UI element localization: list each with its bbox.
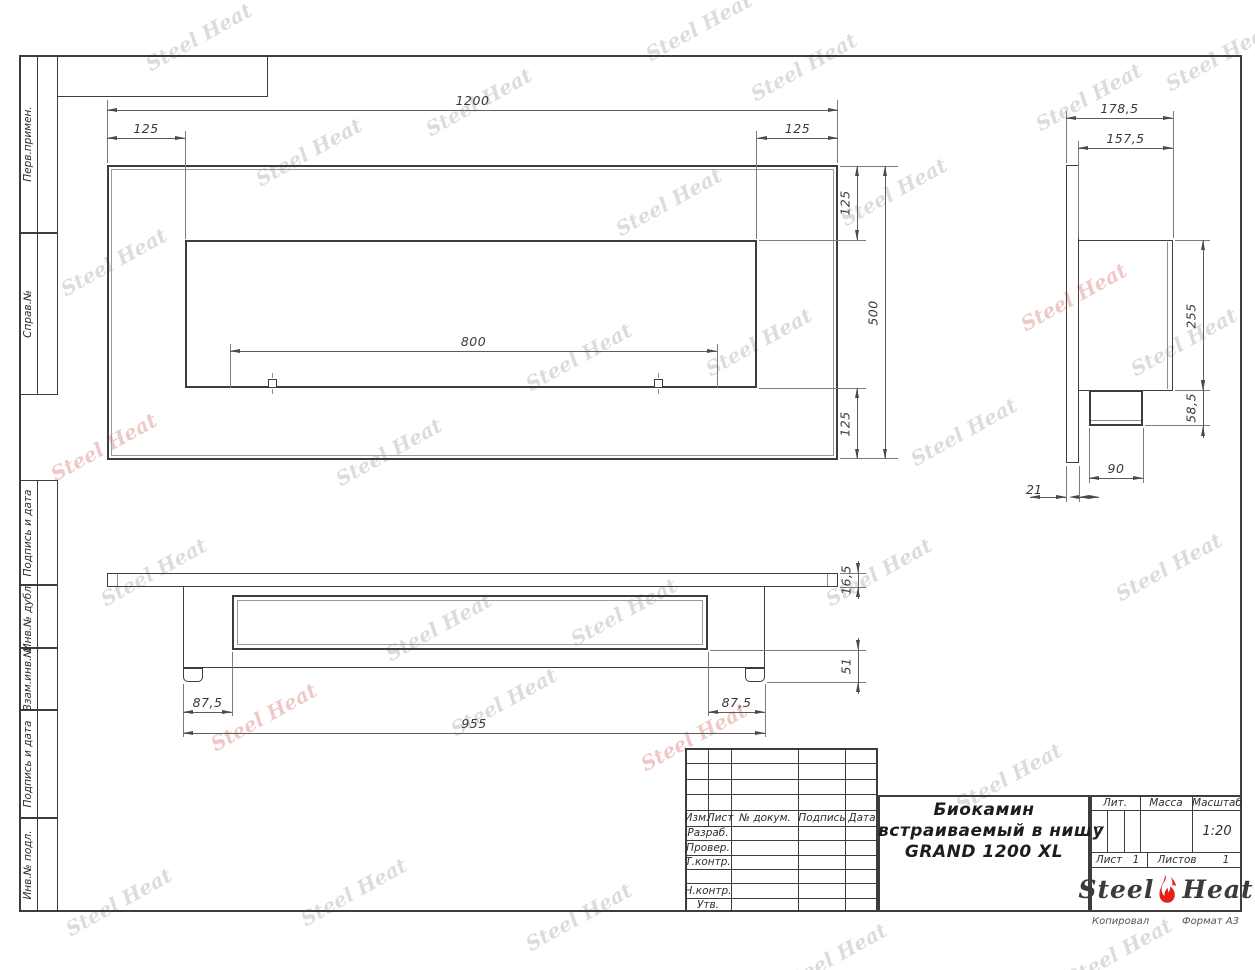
dim-front-top-offset: 125: [857, 166, 858, 240]
doc-title-line: встраиваемый в нишу: [878, 821, 1090, 841]
sheet-label: Лист: [1094, 852, 1124, 867]
bottom-opening-inner: [237, 600, 703, 645]
dim-label: 58,5: [1184, 393, 1199, 423]
bottom-flange: [107, 573, 838, 587]
dim-side-inner-depth: 157,5: [1078, 148, 1173, 149]
dim-label: 87,5: [722, 695, 752, 710]
doc-title-line: Биокамин: [878, 800, 1090, 820]
extension-line: [759, 388, 866, 389]
dim-label: 157,5: [1106, 131, 1144, 146]
rev-header: № докум.: [732, 810, 798, 826]
extension-line: [759, 240, 866, 241]
flange-end-line: [117, 574, 118, 586]
divider: [37, 586, 38, 647]
steelheat-logo: Steel Heat: [1090, 867, 1242, 912]
role-label: Провер.: [685, 840, 731, 855]
dim-bottom-left-offset: 87,5: [183, 712, 232, 713]
extension-line: [1175, 240, 1210, 241]
side-body: [1078, 240, 1173, 391]
sidebar-label: Взам.инв.№: [22, 647, 34, 712]
sheets-label: Листов: [1155, 852, 1199, 867]
dim-side-depth-total: 178,5: [1066, 118, 1173, 119]
dim-label: 800: [461, 334, 486, 349]
logo-steel-text: Steel: [1078, 875, 1154, 904]
dim-label: 125: [838, 411, 853, 436]
arrowhead: [1069, 495, 1079, 499]
sidebar-label: Перв.примен.: [22, 106, 34, 181]
extension-line: [765, 684, 766, 737]
drawing-sheet: Steel HeatSteel HeatSteel HeatSteel Heat…: [0, 0, 1255, 970]
dim-front-left-offset: 125: [107, 138, 185, 139]
extension-line: [767, 682, 866, 683]
sidebar-label: Справ.№: [22, 290, 34, 338]
dim-side-burner-height: 58,5: [1203, 378, 1204, 438]
sidebar-cell: Инв.№ подл.: [19, 818, 58, 912]
extension-line: [232, 652, 233, 716]
role-label: Т.контр.: [685, 855, 731, 869]
rev-header: Лист: [709, 810, 731, 826]
extension-line: [756, 131, 757, 239]
extension-line: [1175, 390, 1210, 391]
doc-title-line: GRAND 1200 XL: [878, 842, 1090, 862]
dim-front-width: 1200: [107, 110, 838, 111]
role-label: Разраб.: [685, 826, 731, 840]
sidebar-cell: Инв.№ дубл.: [19, 585, 58, 648]
scale-value: 1:20: [1192, 810, 1242, 852]
flame-icon: [1156, 875, 1180, 905]
sheet-value: 1: [1128, 852, 1144, 867]
flange-end-line: [827, 574, 828, 586]
role-label: Н.контр.: [685, 883, 731, 898]
dim-front-right-offset: 125: [757, 138, 838, 139]
mass-label: Масса: [1140, 795, 1192, 810]
extension-line: [708, 652, 709, 716]
dim-burner-width: 800: [230, 351, 717, 352]
sidebar-cell: Взам.инв.№: [19, 648, 58, 710]
clip-tick: [272, 389, 273, 394]
extension-line: [1173, 111, 1174, 238]
dim-bottom-body-width: 955: [183, 733, 765, 734]
divider: [37, 819, 38, 911]
scale-label: Масштаб: [1192, 795, 1242, 810]
front-opening: [185, 240, 757, 388]
rev-header: Изм.: [685, 810, 709, 826]
sheets-value: 1: [1218, 852, 1234, 867]
burner-clip: [268, 379, 277, 388]
dim-label: 90: [1108, 461, 1125, 476]
dim-bottom-base-height: 51: [858, 638, 859, 694]
sidebar-cell: Справ.№: [19, 233, 58, 395]
sidebar-label: Подпись и дата: [22, 489, 34, 576]
lit-value: 0: [1090, 810, 1107, 852]
dim-label: 1200: [456, 93, 490, 108]
top-left-stamp-box: [57, 55, 268, 97]
sidebar-label: Подпись и дата: [22, 721, 34, 808]
dim-label: 125: [838, 190, 853, 215]
extension-line: [1066, 466, 1067, 502]
divider: [37, 56, 38, 232]
clip-tick: [658, 373, 659, 378]
sidebar-cell: Перв.примен.: [19, 55, 58, 233]
sidebar-label: Инв.№ подл.: [22, 830, 34, 899]
extension-line: [840, 166, 898, 167]
dim-label: 955: [461, 716, 486, 731]
divider: [37, 481, 38, 584]
lit-label: Лит.: [1090, 795, 1140, 810]
dim-label: 125: [785, 121, 810, 136]
extension-line: [185, 131, 186, 239]
dim-label: 125: [133, 121, 158, 136]
sidebar-cell: Подпись и дата: [19, 480, 58, 585]
extension-line: [710, 650, 866, 651]
divider: [37, 649, 38, 709]
foot: [183, 668, 203, 682]
logo-heat-text: Heat: [1182, 875, 1253, 904]
sidebar-label: Инв.№ дубл.: [22, 582, 34, 651]
arrowhead: [1056, 495, 1066, 499]
dim-label: 87,5: [193, 695, 223, 710]
rev-header: Подпись: [799, 810, 845, 826]
extension-line: [1078, 141, 1079, 238]
dim-label: 500: [866, 300, 881, 325]
dim-label: 21: [1026, 482, 1042, 497]
sidebar-cell: Подпись и дата: [19, 710, 58, 818]
dim-tail: [1079, 497, 1099, 498]
side-body-inner-line: [1167, 242, 1168, 389]
burner-clip: [654, 379, 663, 388]
dim-label: 51: [839, 658, 854, 675]
dim-label: 16,5: [839, 565, 854, 595]
divider: [37, 711, 38, 817]
brand-watermark: Steel Heat: [777, 918, 891, 970]
dim-side-body-height: 255: [1203, 240, 1204, 391]
burner-inner-line: [1091, 420, 1141, 421]
copied-label: Копировал: [1092, 916, 1149, 927]
dim-bottom-flange-thickness: 16,5: [858, 561, 859, 599]
dim-label: 178,5: [1100, 101, 1138, 116]
role-label: Утв.: [685, 898, 731, 912]
format-label: Формат А3: [1182, 916, 1239, 927]
dim-side-burner-depth: 90: [1089, 478, 1143, 479]
clip-tick: [272, 373, 273, 378]
rev-header: Дата: [846, 810, 878, 826]
dim-front-bottom-offset: 125: [857, 388, 858, 459]
dim-bottom-right-offset: 87,5: [708, 712, 765, 713]
mass-value: [1140, 810, 1192, 852]
foot: [745, 668, 765, 682]
divider: [37, 234, 38, 394]
dim-label: 255: [1184, 303, 1199, 328]
extension-line: [1143, 428, 1144, 483]
extension-line: [840, 458, 898, 459]
extension-line: [717, 344, 718, 388]
clip-tick: [658, 389, 659, 394]
role-label: [685, 869, 731, 883]
dim-front-height: 500: [885, 166, 886, 459]
